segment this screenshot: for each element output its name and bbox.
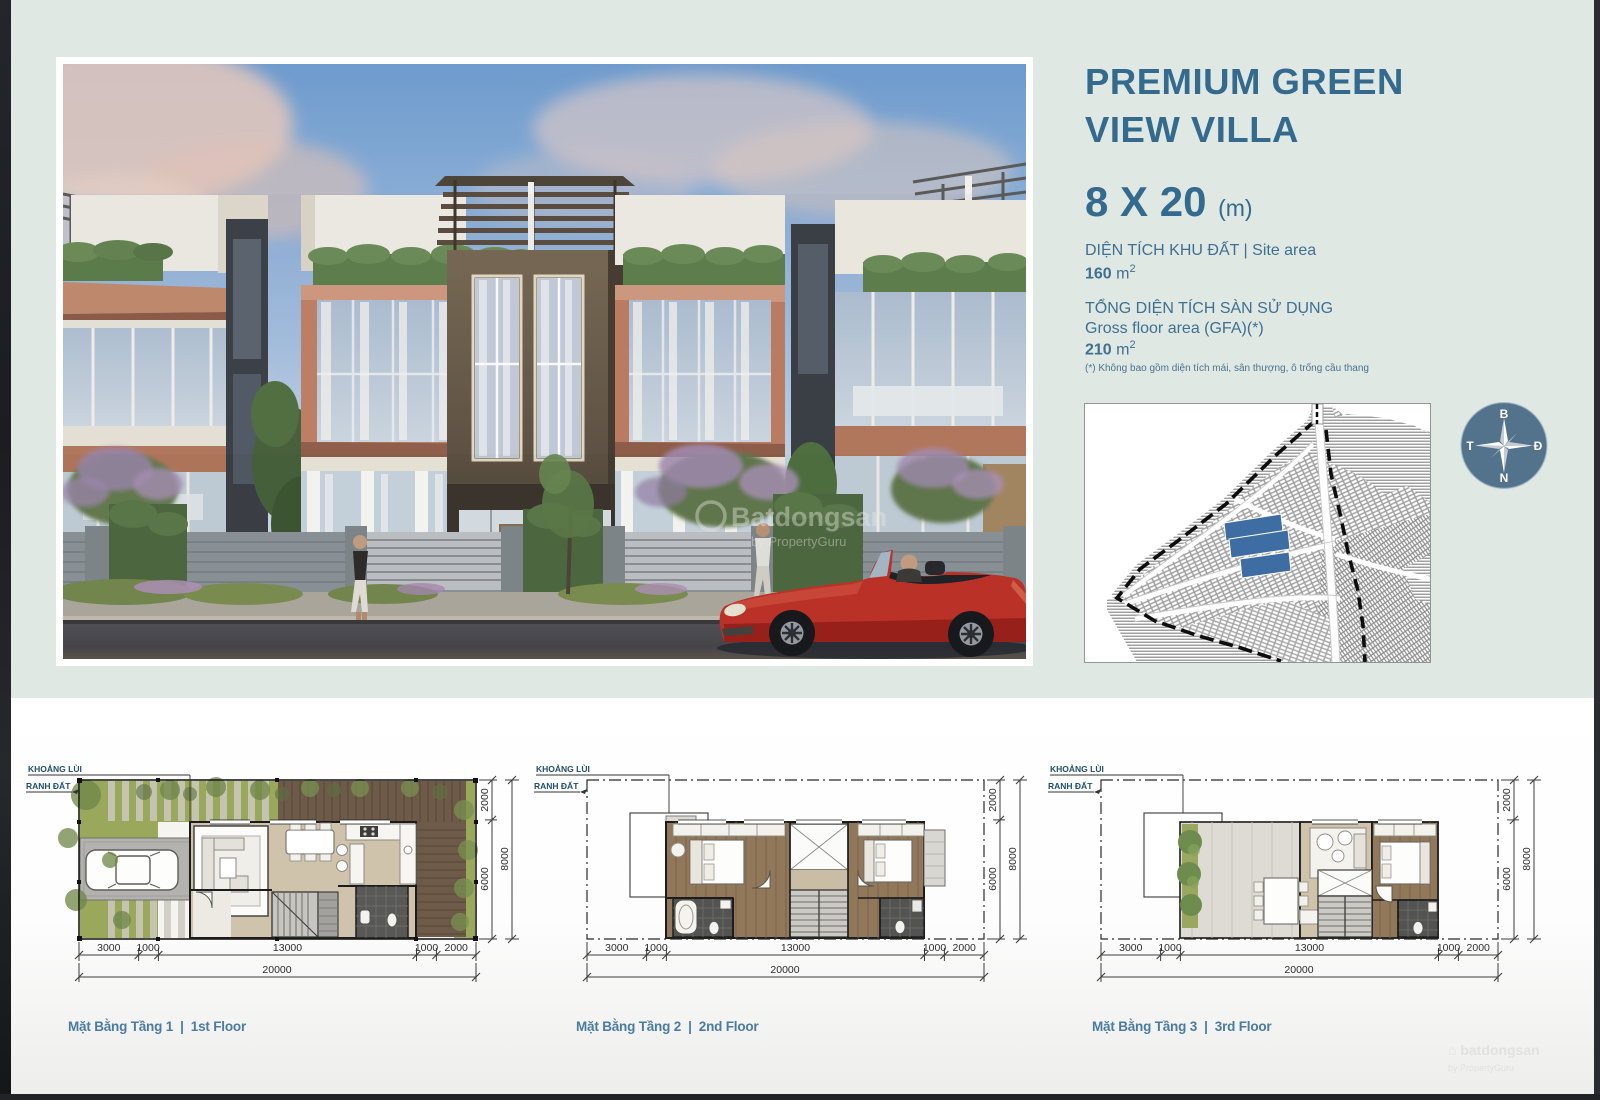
svg-text:13000: 13000 [273, 942, 302, 954]
svg-text:3000: 3000 [605, 942, 629, 954]
svg-text:8000: 8000 [1007, 847, 1019, 871]
svg-text:1000: 1000 [644, 942, 668, 954]
svg-text:8000: 8000 [499, 847, 511, 871]
svg-text:6000: 6000 [479, 867, 491, 891]
svg-text:8000: 8000 [1521, 847, 1533, 871]
svg-text:RANH ĐẤT: RANH ĐẤT [534, 781, 579, 791]
svg-text:N: N [1500, 471, 1509, 485]
svg-text:Batdongsan: Batdongsan [731, 502, 887, 532]
svg-text:13000: 13000 [1295, 942, 1324, 954]
svg-text:2000: 2000 [953, 942, 977, 954]
svg-text:20000: 20000 [1284, 964, 1313, 976]
svg-text:T: T [1466, 439, 1474, 453]
svg-text:3000: 3000 [1119, 942, 1143, 954]
svg-text:Đ: Đ [1534, 439, 1543, 453]
svg-text:3000: 3000 [97, 942, 121, 954]
svg-text:1000: 1000 [415, 942, 439, 954]
svg-text:KHOẢNG LÙI: KHOẢNG LÙI [536, 763, 590, 774]
svg-text:6000: 6000 [1501, 867, 1513, 891]
svg-text:KHOẢNG LÙI: KHOẢNG LÙI [1050, 763, 1104, 774]
svg-text:2000: 2000 [1467, 942, 1491, 954]
svg-text:B: B [1500, 407, 1509, 421]
svg-text:by PropertyGuru: by PropertyGuru [751, 534, 846, 549]
svg-text:13000: 13000 [781, 942, 810, 954]
svg-text:6000: 6000 [987, 867, 999, 891]
svg-text:1000: 1000 [923, 942, 947, 954]
svg-text:1000: 1000 [136, 942, 160, 954]
svg-text:2000: 2000 [1501, 788, 1513, 812]
svg-text:1000: 1000 [1158, 942, 1182, 954]
svg-text:20000: 20000 [770, 964, 799, 976]
svg-text:20000: 20000 [262, 964, 291, 976]
svg-text:2000: 2000 [987, 788, 999, 812]
svg-text:2000: 2000 [445, 942, 469, 954]
svg-text:KHOẢNG LÙI: KHOẢNG LÙI [28, 763, 82, 774]
svg-text:2000: 2000 [479, 788, 491, 812]
svg-text:1000: 1000 [1437, 942, 1461, 954]
svg-text:RANH ĐẤT: RANH ĐẤT [26, 781, 71, 791]
svg-text:RANH ĐẤT: RANH ĐẤT [1048, 781, 1093, 791]
